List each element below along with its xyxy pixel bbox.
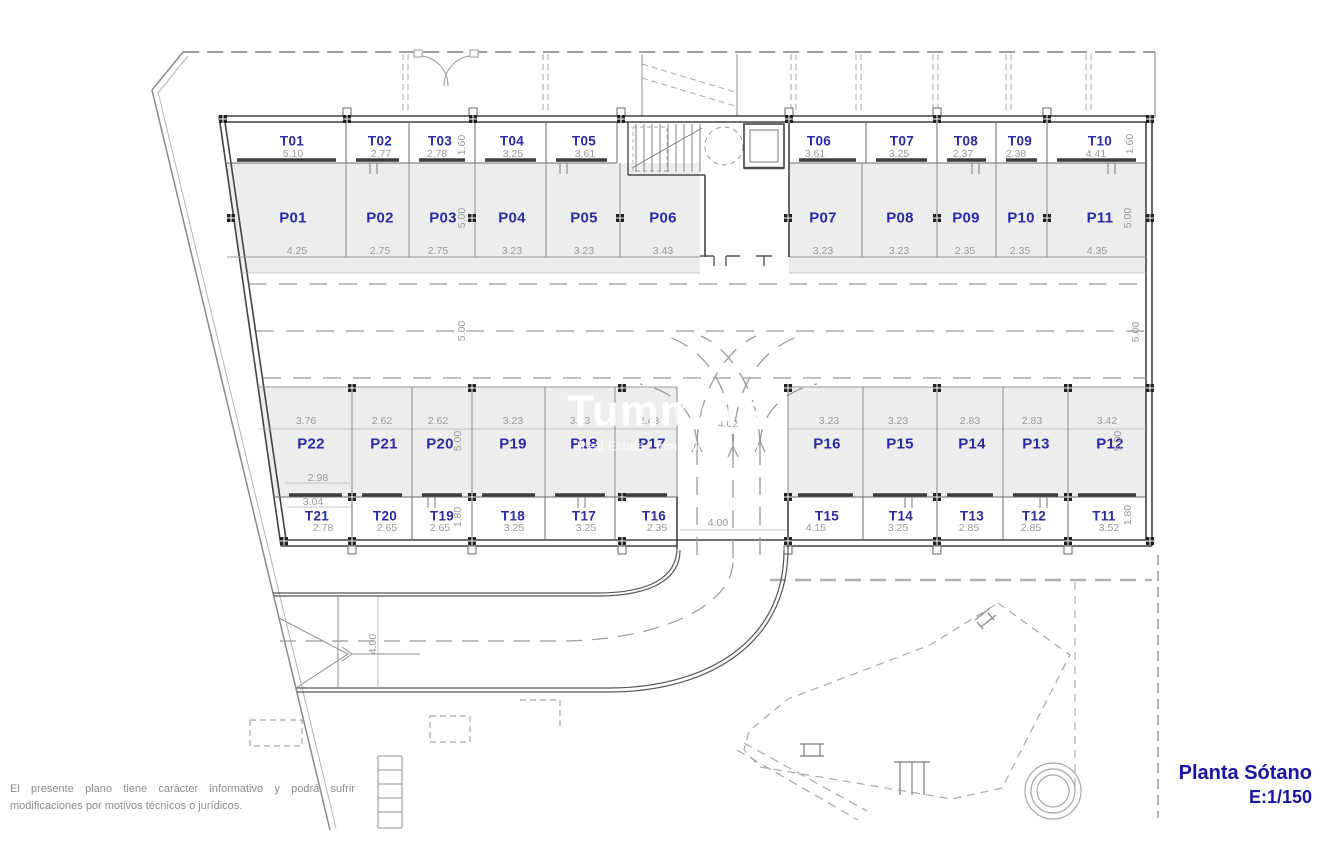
parking-label-p16: P16 <box>813 436 841 453</box>
parking-dim-p19: 3.23 <box>503 415 523 427</box>
dim-t21-width: 3.04 <box>303 496 323 508</box>
dim-bay-depth-top-left: 5.00 <box>456 208 468 228</box>
dim-aisle-width-right: 5.00 <box>1130 322 1142 342</box>
parking-label-p05: P05 <box>570 210 598 227</box>
parking-label-p18: P18 <box>570 436 598 453</box>
elevator <box>744 124 784 168</box>
parking-label-p13: P13 <box>1022 436 1050 453</box>
storage-label-t01: T01 <box>280 134 304 149</box>
exterior-stair <box>378 756 402 828</box>
storage-label-t05: T05 <box>572 134 596 149</box>
parking-label-p09: P09 <box>952 210 980 227</box>
storage-label-t08: T08 <box>954 134 978 149</box>
entrance-door <box>414 50 478 86</box>
parking-dim-p04: 3.23 <box>502 245 522 257</box>
parking-label-p11: P11 <box>1087 210 1114 227</box>
storage-dim-t02: 2.77 <box>371 148 391 160</box>
storage-dim-t14: 3.25 <box>888 522 908 534</box>
storage-label-t06: T06 <box>807 134 831 149</box>
dim-entry-ramp-width: 4.00 <box>367 634 379 654</box>
storage-dim-t18: 3.25 <box>504 522 524 534</box>
storage-dim-t06: 3.61 <box>805 148 825 160</box>
disclaimer-line2: modificaciones por motivos técnicos o ju… <box>10 798 355 815</box>
disclaimer-note: El presente plano tiene carácter informa… <box>10 781 355 815</box>
title-block: Planta Sótano E:1/150 <box>1179 762 1312 808</box>
storage-label-t10: T10 <box>1088 134 1112 149</box>
floorplan-canvas: T01 5.10 T02 2.77 T03 2.78 T04 3.25 T05 … <box>0 0 1320 859</box>
spa-circle <box>1025 763 1081 819</box>
dim-aisle-width-left: 5.00 <box>456 321 468 341</box>
dim-ramp-width: 4.02 <box>718 418 738 430</box>
terrace-steps <box>250 700 560 746</box>
plan-scale: E:1/150 <box>1179 787 1312 808</box>
parking-dim-p03: 2.75 <box>428 245 448 257</box>
dim-storage-depth-bottom-right: 1.80 <box>1122 505 1134 525</box>
storage-label-t03: T03 <box>428 134 452 149</box>
storage-dim-t17: 3.25 <box>576 522 596 534</box>
parking-label-p02: P02 <box>366 210 394 227</box>
parking-dim-p08: 3.23 <box>889 245 909 257</box>
storage-dim-t09: 2.38 <box>1006 148 1026 160</box>
storage-dim-t04: 3.25 <box>503 148 523 160</box>
parking-label-p07: P07 <box>809 210 837 227</box>
parking-label-p21: P21 <box>370 436 398 453</box>
parking-label-p14: P14 <box>958 436 986 453</box>
parking-label-p06: P06 <box>649 210 677 227</box>
parking-label-p22: P22 <box>297 436 325 453</box>
parking-dim-p06: 3.43 <box>653 245 673 257</box>
parking-dim-p12: 3.42 <box>1097 415 1117 427</box>
storage-dim-t01: 5.10 <box>283 148 303 160</box>
parking-label-p15: P15 <box>886 436 914 453</box>
parking-dim-p13: 2.83 <box>1022 415 1042 427</box>
storage-label-t04: T04 <box>500 134 524 149</box>
parking-dim-p01: 4.25 <box>287 245 307 257</box>
dim-ramp-bottom: 4.00 <box>708 517 728 529</box>
parking-dim-p07: 3.23 <box>813 245 833 257</box>
entry-ramp <box>279 596 420 688</box>
storage-dim-t07: 3.25 <box>889 148 909 160</box>
storage-dim-t10: 4.41 <box>1086 148 1106 160</box>
parking-label-p17: P17 <box>638 436 666 453</box>
storage-dim-t08: 2.37 <box>953 148 973 160</box>
parking-label-p01: P01 <box>279 210 307 227</box>
storage-label-t09: T09 <box>1008 134 1032 149</box>
parking-dim-p02: 2.75 <box>370 245 390 257</box>
storage-dim-t19: 2.65 <box>430 522 450 534</box>
dim-bay-depth-bottom-left: 5.00 <box>452 431 464 451</box>
plan-title: Planta Sótano <box>1179 762 1312 785</box>
parking-dim-p22: 3.76 <box>296 415 316 427</box>
parking-dim-p15: 3.23 <box>888 415 908 427</box>
dim-bay-depth-bottom-right: 5.00 <box>1112 431 1124 451</box>
parking-label-p19: P19 <box>499 436 527 453</box>
parking-label-p20: P20 <box>426 436 454 453</box>
parking-dim-p16: 3.23 <box>819 415 839 427</box>
floorplan-linework <box>0 0 1320 859</box>
parking-label-p03: P03 <box>429 210 457 227</box>
parking-dim-p05: 3.23 <box>574 245 594 257</box>
parking-label-p08: P08 <box>886 210 914 227</box>
parking-dim-p09: 2.35 <box>955 245 975 257</box>
parking-label-p04: P04 <box>498 210 526 227</box>
dim-storage-depth-right: 1.60 <box>1124 134 1136 154</box>
parking-dim-p14: 2.83 <box>960 415 980 427</box>
storage-dim-t05: 3.61 <box>575 148 595 160</box>
parking-dim-p11: 4.35 <box>1087 245 1107 257</box>
dim-p22-front: 2.98 <box>308 472 328 484</box>
storage-dim-t20: 2.65 <box>377 522 397 534</box>
parking-dim-p21: 2.62 <box>372 415 392 427</box>
dim-storage-depth-left: 1.60 <box>456 135 468 155</box>
parking-dim-p20: 2.62 <box>428 415 448 427</box>
storage-label-t02: T02 <box>368 134 392 149</box>
storage-dim-t03: 2.78 <box>427 148 447 160</box>
parking-label-p10: P10 <box>1007 210 1035 227</box>
parking-dim-p18: 3.23 <box>570 415 590 427</box>
storage-label-t07: T07 <box>890 134 914 149</box>
dim-bay-depth-top-right: 5.00 <box>1122 208 1134 228</box>
lane-arrows <box>692 441 765 457</box>
storage-dim-t16: 2.35 <box>647 522 667 534</box>
parking-dim-p10: 2.35 <box>1010 245 1030 257</box>
parking-dim-p17: 2.43 <box>639 415 659 427</box>
upper-level-projection <box>403 50 1091 116</box>
dim-storage-depth-bottom-left: 1.80 <box>452 507 464 527</box>
storage-dim-t12: 2.85 <box>1021 522 1041 534</box>
storage-dim-t21: 2.78 <box>313 522 333 534</box>
storage-dim-t13: 2.85 <box>959 522 979 534</box>
pool-outline <box>744 603 1070 799</box>
disclaimer-line1: El presente plano tiene carácter informa… <box>10 781 355 798</box>
storage-dim-t15: 4.15 <box>806 522 826 534</box>
pool-ladder-icons <box>800 608 996 795</box>
storage-dim-t11: 3.52 <box>1099 522 1119 534</box>
turning-circle <box>705 127 743 165</box>
